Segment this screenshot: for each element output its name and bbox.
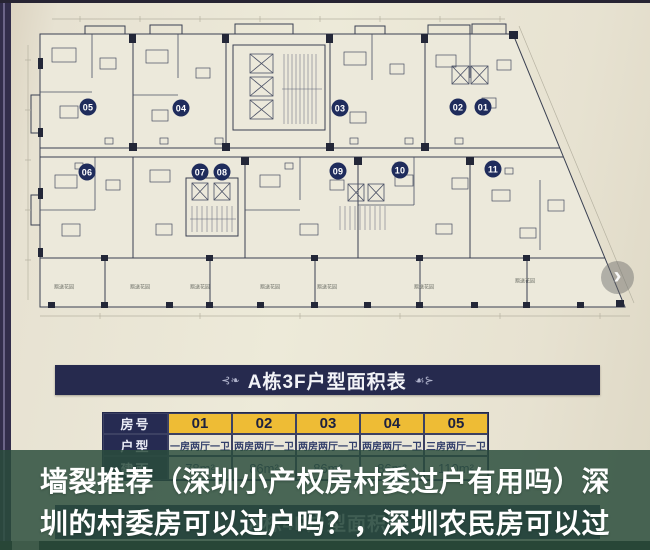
carousel-next-button[interactable]: › [601, 261, 634, 294]
terrace-label: 赠送花园 [130, 284, 150, 291]
unit-badge-04: 04 [173, 100, 190, 117]
caption: 墙裂推荐（深圳小产权房村委过户有用吗）深 圳的村委房可以过户吗？，深圳农民房可以… [0, 461, 650, 545]
flourish-right-icon: ☙⊱ [415, 374, 434, 387]
terrace-label: 赠送花园 [317, 284, 337, 291]
terrace-label: 赠送花园 [414, 284, 434, 291]
room-number-cell: 04 [360, 413, 424, 434]
row-label-room: 房号 [103, 413, 168, 434]
unit-badge-10: 10 [392, 162, 409, 179]
room-number-cell: 02 [232, 413, 296, 434]
unit-badge-03: 03 [332, 100, 349, 117]
terrace-label: 赠送花园 [260, 284, 280, 291]
photo-top-edge [0, 0, 650, 3]
chevron-right-icon: › [614, 264, 622, 288]
unit-badge-08: 08 [214, 164, 231, 181]
unit-badge-06: 06 [79, 164, 96, 181]
area-table-title: A栋3F户型面积表 [248, 367, 407, 394]
terrace-label: 赠送花园 [515, 278, 535, 285]
terrace-label: 赠送花园 [190, 284, 210, 291]
flourish-left-icon: ⊰❧ [221, 374, 239, 387]
unit-badge-02: 02 [450, 99, 467, 116]
unit-badge-09: 09 [330, 163, 347, 180]
room-number-cell: 03 [296, 413, 360, 434]
area-table-title-bar: ⊰❧ A栋3F户型面积表 ☙⊱ [55, 365, 600, 395]
unit-badge-07: 07 [192, 164, 209, 181]
room-number-cell: 01 [168, 413, 232, 434]
caption-line-1: 墙裂推荐（深圳小产权房村委过户有用吗）深 [0, 461, 650, 503]
terrace-label: 赠送花园 [54, 284, 74, 291]
unit-badge-01: 01 [475, 99, 492, 116]
caption-line-2: 圳的村委房可以过户吗？，深圳农民房可以过 [0, 503, 650, 545]
unit-badge-11: 11 [485, 161, 502, 178]
listing-photo: 05 04 03 02 01 06 07 08 09 10 11 赠送花园 赠送… [0, 0, 650, 550]
room-number-cell: 05 [424, 413, 488, 434]
unit-badge-05: 05 [80, 99, 97, 116]
